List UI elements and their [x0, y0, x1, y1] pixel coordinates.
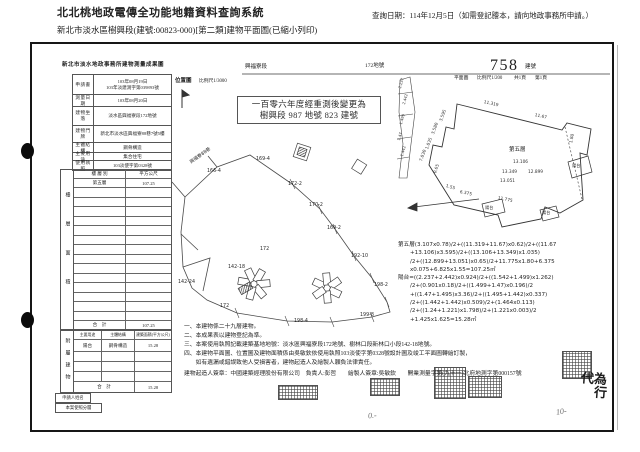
scanned-document: 新北市淡水地政事務所建物測量成果圖 興福寮段 172地號 758 建號 平面圖 …: [30, 42, 614, 432]
parcel-label: 199-8: [360, 314, 374, 319]
annex-section: 附屬建物 主要用途 主體結構 建築面積(平方公尺) 陽台 鋼骨構造 15.28 …: [60, 330, 172, 393]
row-value: 103年08月19日 103年淡建測字第039893號: [94, 75, 171, 94]
balcony-detail: [397, 77, 415, 178]
empty-row: [74, 188, 171, 198]
applicant-name-box: 申請人姓名: [55, 393, 91, 403]
total-label: 合 計: [74, 382, 135, 392]
building-cluster-subject: [238, 268, 271, 300]
annex-side-label: 附屬建物: [61, 331, 74, 392]
structure-type: 鋼骨構造: [94, 143, 171, 152]
annex-use: 陽台: [74, 340, 102, 351]
note-line: 二、本成果表以建物登記為準。: [184, 332, 522, 341]
empty-row: [74, 245, 171, 255]
seal-stamp: [370, 378, 400, 396]
annex-total-row: 合 計 15.28: [74, 382, 171, 392]
empty-row: [74, 198, 171, 208]
application-number: 103年淡建測字第039893號: [106, 85, 159, 91]
dim-label: 13.051: [500, 180, 515, 184]
handwriting-xing: 行: [594, 386, 608, 400]
calc-line: 陽台=((2.237+2.442)x0.924)/2+((1.542+1.499…: [398, 274, 556, 282]
seal-stamp: [278, 385, 318, 400]
document-subtitle: 新北市淡水區樹興段(建號:00823-000)[第二類]建物平面圖(已縮小列印): [57, 26, 317, 35]
floor-plan: [429, 104, 592, 227]
location-map: [172, 155, 390, 327]
area-calculation: 第五層(3.107x0.78)/2+((11.319+11.67)x0.62)/…: [398, 241, 556, 324]
table-row: 建物坐落 淡水區興福寮段172地號: [73, 107, 171, 126]
pencil-scribble: 10-: [555, 407, 567, 416]
floor-name: 第五層: [74, 179, 126, 187]
permit-floors-box: 本案使照分層: [55, 403, 102, 413]
section-name: 興福寮段: [245, 65, 267, 71]
building-location: 淡水區興福寮段172地號: [94, 107, 171, 125]
balcony-label: 陽台: [485, 206, 493, 210]
calc-line: x0.075+6.825x1.55=107.25㎡: [398, 266, 556, 274]
parcel-label: 142-18: [228, 266, 245, 271]
empty-row: [74, 312, 171, 322]
parcel-label: 170-2: [309, 204, 323, 209]
calc-line: /2+((12.899+13.051)x0.65)/2+11.775x1.80+…: [398, 258, 556, 266]
page-number: 第1頁: [535, 77, 547, 82]
annex-area: 15.28: [135, 340, 171, 351]
remeasure-line1: 一百零六年度經重測後變更為: [241, 99, 377, 110]
notes-block: 一、本建物係二十九層建物。 二、本成果表以建物登記為準。 三、本案使用執照記載建…: [184, 323, 522, 379]
table-row: 建物門牌 新北市淡水區興福寮88巷7號5樓: [73, 126, 171, 143]
empty-row: [74, 293, 171, 303]
parcel-label: 169-2: [327, 227, 341, 232]
empty-row: [74, 274, 171, 284]
parcel-label: 172: [220, 305, 229, 310]
calc-line: 第五層(3.107x0.78)/2+((11.319+11.67)x0.62)/…: [398, 241, 556, 249]
empty-row: [74, 255, 171, 265]
location-map-label: 位置圖: [175, 79, 192, 85]
dim-label: 13.106: [513, 161, 528, 165]
dim-label: 13.349: [502, 171, 517, 175]
calc-line: /2+((1.442+1.442)x0.509)/2+(1.464x0.113): [398, 299, 556, 307]
empty-row: [74, 283, 171, 293]
empty-row: [74, 217, 171, 227]
parcel-number: 172地號: [365, 64, 384, 70]
punch-hole-bottom: [21, 312, 34, 328]
remeasure-stamp-box: 一百零六年度經重測後變更為 樹興段 987 地號 823 建號: [237, 96, 381, 124]
annex-structure: 鋼骨構造: [102, 340, 135, 351]
total-label: 合 計: [74, 321, 126, 329]
pointer-arrow: [408, 199, 479, 211]
form-title: 新北市淡水地政事務所建物測量成果圖: [62, 63, 164, 69]
empty-row: [74, 302, 171, 312]
query-date: 查詢日期：114年12月5日（如需登記謄本，請向地政事務所申請。）: [372, 12, 593, 20]
floor-total: 107.25: [126, 321, 171, 329]
col-floor: 樓 層 別: [74, 170, 126, 178]
floor-total-row: 合 計 107.25: [74, 321, 171, 329]
row-label: 建物坐落: [73, 107, 94, 125]
punch-hole-top: [21, 143, 34, 159]
plan-label: 平面圖: [454, 77, 468, 82]
seal-stamp: [468, 376, 502, 398]
table-row: 測量日期 103年08月20日: [73, 95, 171, 107]
table-row: 申請書 103年08月19日 103年淡建測字第039893號: [73, 75, 171, 95]
remeasure-line2: 樹興段 987 地號 823 建號: [241, 110, 377, 121]
calc-line: +((1.47+1.495)x3.36)/2+((1.495+1.442)x0.…: [398, 291, 556, 299]
parcel-label: 198-2: [374, 284, 388, 289]
floor-area-side-label: 樓層面積: [61, 170, 74, 329]
annex-data-row: 陽台 鋼骨構造 15.28: [74, 340, 171, 352]
balcony-label: 陽台: [572, 164, 580, 168]
empty-row: [74, 264, 171, 274]
empty-row: [74, 207, 171, 217]
empty-row: [74, 362, 171, 372]
floor-header-row: 樓 層 別 平方公尺: [74, 170, 171, 179]
row-label: 測量日期: [73, 95, 94, 106]
floor-area-section: 樓層面積 樓 層 別 平方公尺 第五層 107.25: [60, 169, 172, 330]
row-label: 申請書: [73, 75, 94, 94]
balcony-label: 陽台: [542, 211, 550, 215]
building-cluster-other: [312, 273, 342, 304]
annex-total: 15.28: [135, 382, 171, 392]
floor-data-row: 第五層 107.25: [74, 179, 171, 188]
seal-stamp: [434, 367, 466, 399]
col-sqm: 平方公尺: [126, 170, 171, 178]
note-line: 一、本建物係二十九層建物。: [184, 323, 522, 332]
survey-form-table: 申請書 103年08月19日 103年淡建測字第039893號 測量日期 103…: [72, 74, 172, 171]
building-number: 758: [490, 58, 519, 74]
app-title: 北北桃地政電傳全功能地籍資料查詢系統: [57, 8, 264, 19]
note-line: 三、本案使用執照記載建築基地地號：淡水區興福寮段172地號、樹林口段新林口小段1…: [184, 341, 522, 350]
parcel-label: 172: [260, 248, 269, 253]
calc-line: /2+((1.24+1.221)x1.798)/2+(1.221x0.003)/…: [398, 307, 556, 315]
annex-header-row: 主要用途 主體結構 建築面積(平方公尺): [74, 331, 171, 340]
calc-line: /2+(0.901x0.18)/2+((1.499+1.47)x0.196)/2: [398, 282, 556, 290]
neighbor-plots: [293, 143, 367, 174]
row-label: 建物門牌: [73, 126, 94, 142]
pencil-scribble: 0.-: [368, 412, 377, 421]
parcel-label: 166-4: [207, 170, 221, 175]
col-use: 主要用途: [74, 331, 102, 339]
parcel-label: 192-10: [351, 255, 368, 260]
paper-edge-line: [617, 45, 618, 430]
note-line: 四、本建物平面圖、位置圖及建物面積係由吳敏欽依使用執照103淡使字第0328號設…: [184, 350, 522, 359]
main-use: 集合住宅: [94, 153, 171, 160]
empty-row: [74, 352, 171, 362]
plan-floor-label: 第五層: [509, 148, 526, 154]
floor-area: 107.25: [126, 179, 171, 187]
parcel-label: 172-2: [288, 183, 302, 188]
dim-label: 12.899: [528, 171, 543, 175]
col-area: 建築面積(平方公尺): [135, 331, 171, 339]
empty-row: [74, 372, 171, 382]
pages-total: 共1頁: [514, 77, 526, 82]
plan-scale: 比例尺1/200: [477, 77, 502, 82]
building-address: 新北市淡水區興福寮88巷7號5樓: [94, 126, 171, 142]
parcel-label: 169-4: [256, 158, 270, 163]
empty-row: [74, 236, 171, 246]
empty-row: [74, 226, 171, 236]
north-arrow-icon: [182, 90, 189, 108]
query-system-page: 北北桃地政電傳全功能地籍資料查詢系統 查詢日期：114年12月5日（如需登記謄本…: [0, 0, 640, 452]
calc-line: +13.106)x3.595)/2+((13.106+13.349)x1.035…: [398, 249, 556, 257]
note-line: 如有遺漏或錯誤致他人受損害者，建物起造人及繪製人願負法律責任。: [184, 359, 522, 368]
survey-date: 103年08月20日: [94, 95, 171, 106]
location-map-scale: 比例尺1/3000: [199, 80, 227, 85]
building-number-label: 建號: [525, 65, 536, 71]
col-structure: 主體結構: [102, 331, 135, 339]
parcel-label: 142-24: [178, 281, 195, 286]
